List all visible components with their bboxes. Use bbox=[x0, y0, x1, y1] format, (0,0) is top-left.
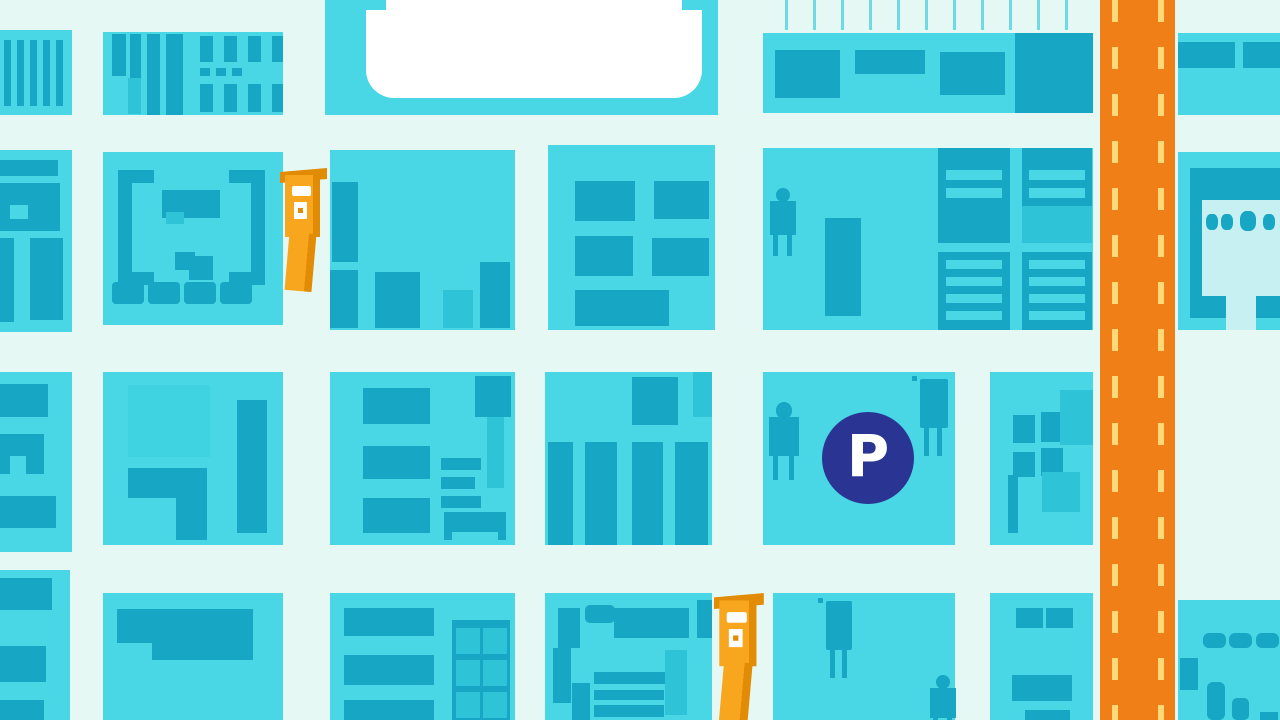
building-shape bbox=[575, 290, 669, 326]
landmark-notch bbox=[366, 0, 386, 10]
building-shape bbox=[572, 683, 590, 720]
block-r1-c6 bbox=[1178, 152, 1280, 330]
block-r1-c2 bbox=[330, 150, 515, 330]
building-shape bbox=[444, 512, 506, 532]
block-r3-c4 bbox=[773, 593, 955, 720]
road-lane-dash bbox=[1112, 0, 1118, 720]
block-r3-c1 bbox=[103, 593, 283, 720]
fence-line bbox=[813, 0, 816, 30]
person-leg bbox=[773, 456, 778, 480]
building-shape bbox=[665, 650, 687, 715]
building-shape bbox=[1012, 675, 1072, 701]
building-shape bbox=[152, 643, 253, 660]
building-shape bbox=[330, 270, 358, 328]
building-shape bbox=[248, 84, 261, 112]
building-shape bbox=[1025, 710, 1070, 720]
pedestrian bbox=[770, 188, 796, 256]
building-shape bbox=[344, 655, 434, 685]
block-r1-c0 bbox=[0, 150, 72, 332]
building-shape bbox=[118, 170, 132, 285]
meter-leg bbox=[937, 428, 942, 456]
building-shape bbox=[0, 700, 44, 720]
meter-dot bbox=[912, 376, 917, 381]
block-r2-c1 bbox=[103, 372, 283, 545]
building-shape bbox=[940, 52, 1005, 95]
meter-body bbox=[920, 379, 948, 428]
building-shape bbox=[693, 372, 712, 417]
building-shape bbox=[594, 690, 664, 700]
landmark-notch bbox=[682, 0, 702, 10]
building-shape bbox=[248, 36, 261, 62]
parking-pay-station[interactable] bbox=[280, 167, 330, 295]
building-shape bbox=[189, 256, 213, 280]
building-shape bbox=[375, 272, 420, 328]
building-shape bbox=[1178, 42, 1235, 68]
building-shape bbox=[632, 442, 663, 545]
building-shape bbox=[0, 578, 52, 610]
meter-screen bbox=[292, 186, 311, 196]
building-shape bbox=[1256, 633, 1279, 648]
building-shape bbox=[1029, 311, 1085, 320]
block-r1-c4 bbox=[763, 148, 1093, 330]
building-shape bbox=[675, 442, 708, 545]
building-shape bbox=[166, 34, 183, 115]
building-shape bbox=[220, 282, 252, 304]
building-shape bbox=[0, 183, 60, 231]
car-blob bbox=[1263, 214, 1275, 230]
building-shape bbox=[1243, 42, 1280, 68]
meter-side-shade bbox=[313, 175, 320, 237]
person-leg bbox=[789, 456, 794, 480]
building-shape bbox=[614, 608, 689, 638]
building-shape bbox=[483, 628, 507, 654]
building-shape bbox=[1008, 475, 1018, 533]
building-shape bbox=[1207, 682, 1225, 720]
building-shape bbox=[166, 212, 184, 224]
parked-car bbox=[1240, 211, 1256, 231]
building-shape bbox=[363, 388, 430, 424]
building-shape bbox=[4, 40, 11, 106]
building-shape bbox=[946, 260, 1002, 269]
building-shape bbox=[946, 170, 1002, 180]
building-shape bbox=[128, 468, 207, 498]
building-shape bbox=[128, 385, 210, 457]
meter-side-shade bbox=[749, 600, 756, 666]
parking-marker-label: P bbox=[847, 427, 890, 490]
parked-car bbox=[1206, 214, 1218, 230]
building-shape bbox=[946, 188, 1002, 198]
building-shape bbox=[1226, 296, 1256, 330]
building-shape bbox=[483, 692, 507, 718]
building-shape bbox=[1260, 712, 1278, 720]
building-shape bbox=[1013, 415, 1035, 443]
building-shape bbox=[1203, 633, 1226, 648]
parking-pay-station[interactable] bbox=[714, 592, 767, 720]
building-shape bbox=[1029, 188, 1085, 198]
building-shape bbox=[585, 442, 617, 545]
building-shape bbox=[237, 400, 267, 533]
block-r0-c4 bbox=[763, 33, 1093, 113]
building-shape bbox=[825, 218, 861, 316]
building-shape bbox=[30, 238, 63, 320]
building-shape bbox=[456, 692, 480, 718]
fence-line bbox=[841, 0, 844, 30]
person-body bbox=[769, 417, 799, 456]
building-shape bbox=[475, 376, 511, 417]
meter-head bbox=[719, 600, 756, 666]
block-r2-c2 bbox=[330, 372, 515, 545]
building-shape bbox=[652, 238, 709, 276]
building-shape bbox=[0, 160, 58, 176]
building-shape bbox=[946, 277, 1002, 286]
building-shape bbox=[128, 78, 141, 114]
road-lane-dash bbox=[1158, 0, 1164, 720]
building-shape bbox=[441, 477, 475, 489]
building-shape bbox=[441, 496, 481, 508]
meter-post bbox=[285, 232, 317, 292]
building-shape bbox=[548, 442, 573, 545]
building-shape bbox=[1060, 390, 1093, 445]
building-shape bbox=[1029, 294, 1085, 303]
building-shape bbox=[1043, 608, 1046, 628]
building-shape bbox=[147, 34, 160, 115]
building-shape bbox=[112, 34, 126, 76]
building-shape bbox=[946, 311, 1002, 320]
building-shape bbox=[148, 282, 180, 304]
fence-line bbox=[897, 0, 900, 30]
building-shape bbox=[632, 377, 678, 425]
meter-sticker bbox=[294, 202, 307, 219]
building-shape bbox=[0, 238, 14, 322]
building-shape bbox=[200, 36, 213, 62]
building-shape bbox=[1029, 277, 1085, 286]
fence-line bbox=[1065, 0, 1068, 30]
building-shape bbox=[30, 40, 37, 106]
building-shape bbox=[272, 36, 283, 62]
meter-sticker-dot bbox=[733, 635, 738, 640]
building-shape bbox=[483, 660, 507, 686]
building-shape bbox=[456, 660, 480, 686]
building-shape bbox=[216, 68, 226, 76]
building-shape bbox=[232, 68, 242, 76]
building-shape bbox=[1015, 33, 1093, 113]
building-shape bbox=[344, 700, 434, 720]
block-r3-c0 bbox=[0, 570, 70, 720]
building-shape bbox=[487, 417, 504, 488]
building-shape bbox=[176, 498, 207, 540]
block-r0-c1 bbox=[103, 32, 283, 115]
building-shape bbox=[224, 36, 237, 62]
fence-line bbox=[953, 0, 956, 30]
car-blob bbox=[1206, 214, 1218, 230]
building-shape bbox=[224, 84, 237, 112]
block-r0-c6 bbox=[1178, 33, 1280, 115]
parked-car bbox=[1221, 214, 1233, 230]
building-shape bbox=[272, 84, 283, 112]
building-shape bbox=[332, 182, 358, 262]
building-shape bbox=[363, 446, 430, 479]
block-r3-c2 bbox=[330, 593, 515, 720]
building-shape bbox=[1029, 260, 1085, 269]
building-shape bbox=[200, 68, 210, 76]
building-shape bbox=[594, 705, 664, 717]
fence-line bbox=[869, 0, 872, 30]
pedestrian bbox=[769, 402, 799, 480]
building-shape bbox=[855, 50, 925, 74]
building-shape bbox=[1042, 472, 1080, 512]
building-shape bbox=[1180, 658, 1198, 690]
building-shape bbox=[443, 290, 473, 328]
person-body bbox=[770, 201, 796, 235]
meter-leg bbox=[842, 650, 847, 678]
building-shape bbox=[363, 498, 430, 533]
building-shape bbox=[184, 282, 216, 304]
building-shape bbox=[1232, 698, 1249, 720]
building-shape bbox=[441, 458, 481, 470]
building-shape bbox=[575, 236, 633, 276]
building-shape bbox=[697, 600, 712, 638]
building-shape bbox=[585, 605, 615, 623]
meter-screen bbox=[727, 612, 747, 623]
person-leg bbox=[773, 235, 778, 256]
building-shape bbox=[112, 282, 144, 304]
meter-head bbox=[285, 175, 320, 237]
person-leg bbox=[787, 235, 792, 256]
building-shape bbox=[553, 648, 571, 703]
building-shape bbox=[200, 84, 213, 112]
person-body bbox=[930, 688, 956, 718]
building-shape bbox=[456, 628, 480, 654]
parking-marker[interactable]: P bbox=[822, 412, 914, 504]
building-shape bbox=[0, 646, 46, 682]
meter-leg bbox=[924, 428, 929, 456]
fence-line bbox=[925, 0, 928, 30]
block-r2-c5 bbox=[990, 372, 1093, 545]
meter-post bbox=[719, 661, 753, 720]
car-blob bbox=[1221, 214, 1233, 230]
building-shape bbox=[1029, 170, 1085, 180]
pedestrian bbox=[930, 675, 956, 720]
meter-leg bbox=[830, 650, 835, 678]
building-shape bbox=[575, 181, 635, 221]
landmark-building bbox=[366, 0, 702, 98]
meter-dot bbox=[818, 598, 823, 603]
building-shape bbox=[344, 608, 434, 636]
building-shape bbox=[0, 496, 56, 528]
car-blob bbox=[1240, 211, 1256, 231]
block-r3-c6 bbox=[1178, 600, 1280, 720]
parking-meter-silhouette bbox=[826, 596, 852, 678]
building-shape bbox=[775, 50, 840, 98]
meter-sticker bbox=[729, 629, 743, 647]
block-r3-c3 bbox=[545, 593, 712, 720]
building-shape bbox=[43, 40, 50, 106]
block-r2-c0 bbox=[0, 372, 72, 552]
parked-car bbox=[1263, 214, 1275, 230]
building-shape bbox=[480, 262, 510, 328]
city-map-canvas: P bbox=[0, 0, 1280, 720]
building-shape bbox=[444, 532, 452, 540]
building-shape bbox=[594, 672, 666, 684]
building-shape bbox=[654, 181, 709, 219]
block-r2-c3 bbox=[545, 372, 712, 545]
fence-line bbox=[1037, 0, 1040, 30]
building-shape bbox=[558, 608, 580, 648]
building-shape bbox=[946, 294, 1002, 303]
fence-line bbox=[981, 0, 984, 30]
building-shape bbox=[1022, 206, 1092, 243]
building-shape bbox=[0, 384, 48, 417]
building-shape bbox=[251, 170, 265, 285]
block-r0-c0 bbox=[0, 30, 72, 115]
fence-line bbox=[1009, 0, 1012, 30]
building-shape bbox=[10, 456, 26, 474]
building-shape bbox=[1013, 452, 1035, 477]
building-shape bbox=[1229, 633, 1252, 648]
building-shape bbox=[56, 40, 63, 106]
block-r3-c5 bbox=[990, 593, 1093, 720]
building-shape bbox=[17, 40, 24, 106]
block-r1-c1 bbox=[103, 152, 283, 325]
meter-sticker-dot bbox=[298, 208, 303, 213]
building-shape bbox=[117, 609, 253, 643]
parking-meter-silhouette bbox=[920, 374, 948, 456]
meter-body bbox=[826, 601, 852, 650]
building-shape bbox=[498, 532, 506, 540]
block-r1-c3 bbox=[548, 145, 715, 330]
fence-line bbox=[785, 0, 788, 30]
building-shape bbox=[10, 205, 28, 219]
